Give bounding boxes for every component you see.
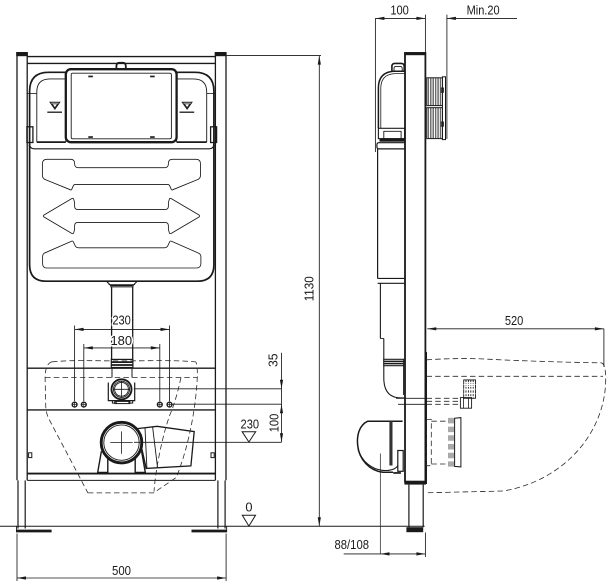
svg-text:1130: 1130 [301,276,316,301]
svg-text:230: 230 [112,313,131,328]
svg-text:100: 100 [390,2,409,17]
svg-text:520: 520 [505,313,524,328]
svg-text:88/108: 88/108 [335,537,370,552]
svg-text:35: 35 [266,353,281,367]
svg-text:100: 100 [266,414,281,433]
svg-text:230: 230 [241,416,260,431]
svg-text:0: 0 [245,499,252,514]
svg-text:180: 180 [110,333,132,348]
svg-text:500: 500 [112,563,131,578]
svg-text:Min.20: Min.20 [467,2,500,17]
